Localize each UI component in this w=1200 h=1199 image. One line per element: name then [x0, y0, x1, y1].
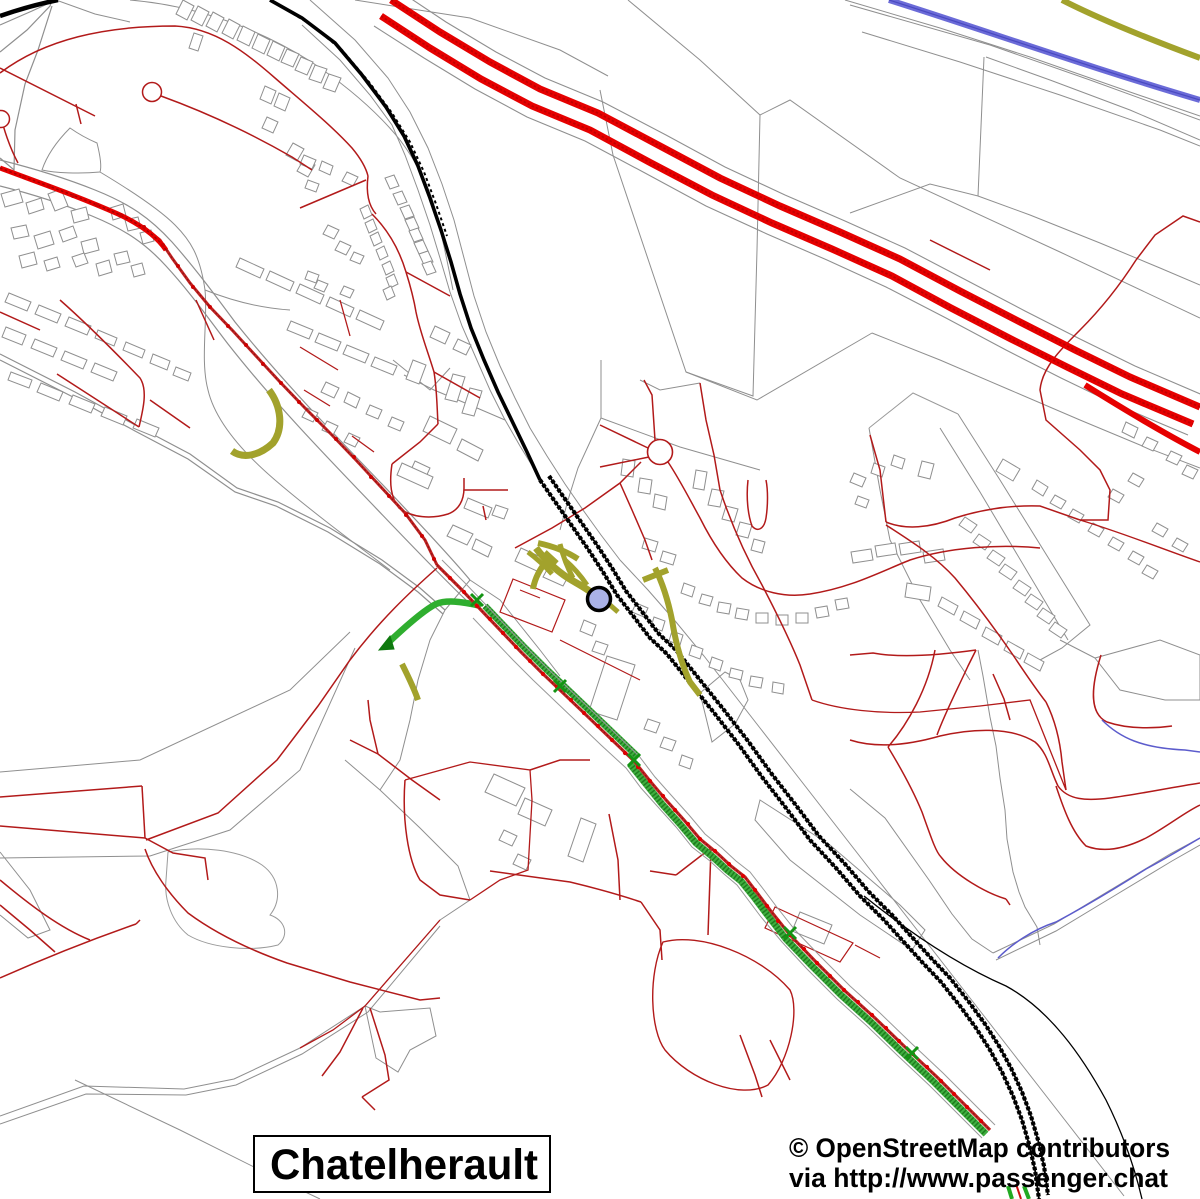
svg-text:Chatelherault: Chatelherault — [270, 1141, 538, 1189]
svg-text:via http://www.passenger.chat: via http://www.passenger.chat — [789, 1163, 1168, 1193]
svg-text:© OpenStreetMap contributors: © OpenStreetMap contributors — [789, 1133, 1170, 1163]
